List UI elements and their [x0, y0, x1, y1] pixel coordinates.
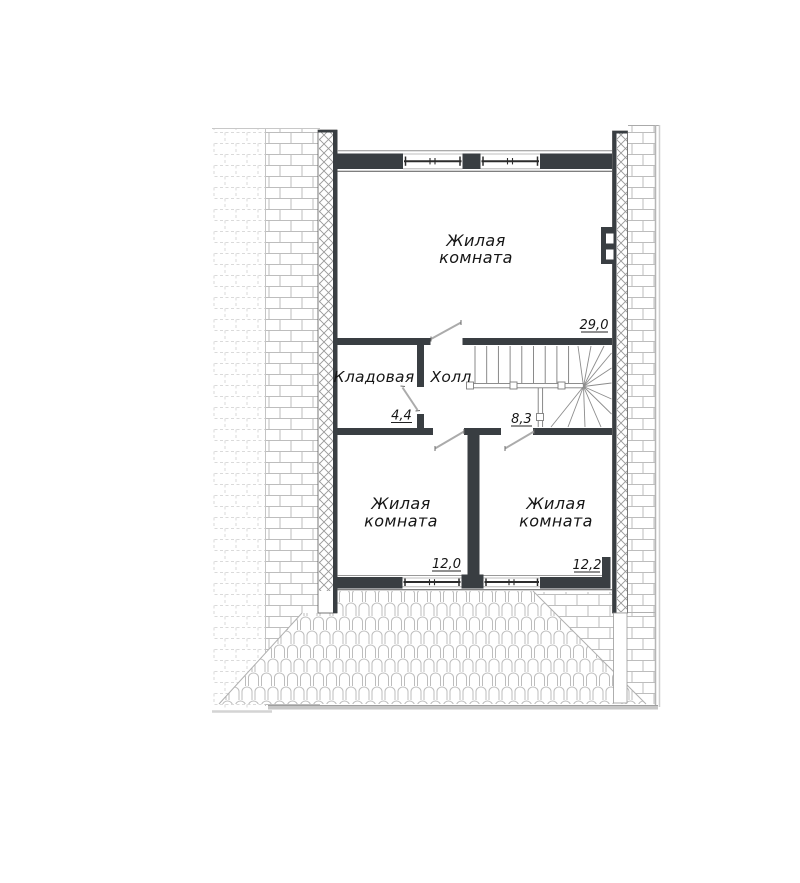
area-label-living-bl: 12,0 [432, 557, 461, 572]
staircase [467, 346, 612, 427]
wall-corner-jog [602, 557, 611, 589]
top-exterior-wall [337, 151, 612, 172]
wall-middle-center-cap [464, 428, 501, 435]
wall-storage-right-stub [417, 414, 424, 430]
vent-duct [601, 227, 614, 264]
room-label-living-bl-line1: Жилая [370, 494, 430, 513]
window [403, 154, 463, 169]
area-label-living-br: 12,2 [573, 558, 602, 573]
wall-hall-top [337, 338, 431, 345]
wall-storage-right [417, 345, 424, 387]
door-bottom-left-room [435, 429, 464, 451]
wall-middle-left [334, 428, 433, 435]
room-label-living-br-line2: комната [519, 512, 593, 531]
wall-center-vertical [468, 435, 480, 575]
room-label-living-bl-line2: комната [364, 512, 438, 531]
door-hall-living [431, 320, 461, 342]
room-label-hall: Холл [429, 368, 471, 386]
window [481, 154, 541, 169]
wall-right-footing [614, 613, 628, 703]
wall-right-column [613, 131, 628, 703]
area-label-storage: 4,4 [391, 409, 412, 424]
wall-stair-top [463, 338, 613, 345]
room-label-living-top-line2: комната [439, 248, 513, 267]
door-storage [401, 386, 421, 411]
window [484, 578, 541, 587]
area-label-hall: 8,3 [511, 412, 532, 427]
wall-middle-right [533, 428, 612, 435]
area-label-living-top: 29,0 [580, 318, 609, 333]
door-bottom-right-room [505, 429, 534, 451]
room-label-storage: Кладовая [334, 368, 415, 386]
floor-plan-page: Жилая комната 29,0 Кладовая 4,4 Холл 8,3… [0, 0, 800, 883]
window [403, 578, 462, 587]
stair-treads [475, 346, 569, 383]
floor-plan-drawing: Жилая комната 29,0 Кладовая 4,4 Холл 8,3… [0, 0, 800, 883]
room-label-living-br-line1: Жилая [525, 494, 585, 513]
